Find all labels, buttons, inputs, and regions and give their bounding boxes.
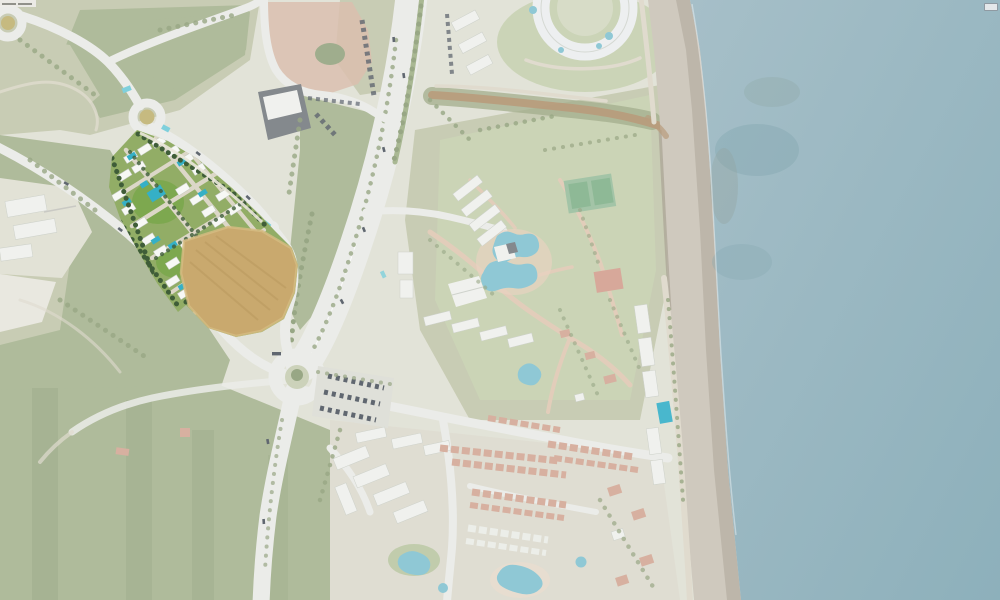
watermark-text-line — [18, 3, 32, 5]
satellite-map-canvas[interactable] — [0, 0, 1000, 600]
watermark-text-line — [2, 3, 16, 5]
hut — [180, 428, 190, 437]
aerial-photo — [0, 0, 1000, 600]
map-control-button[interactable] — [984, 3, 998, 11]
roundabout-northwest — [0, 9, 22, 37]
roundabout-site — [133, 103, 161, 131]
map-attribution-watermark — [0, 0, 36, 7]
ocean — [690, 0, 1000, 600]
sports-court — [594, 268, 624, 293]
